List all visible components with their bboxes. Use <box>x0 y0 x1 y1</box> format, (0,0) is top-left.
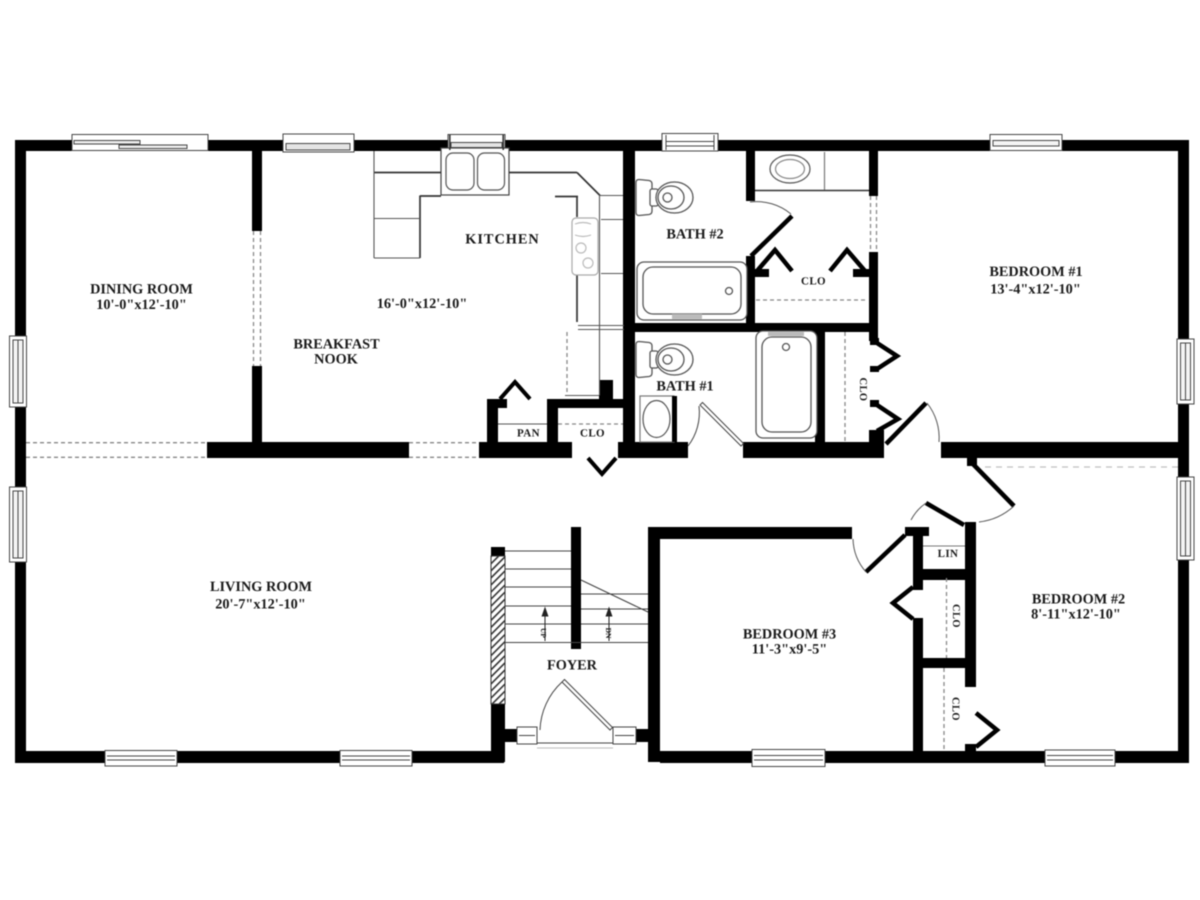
svg-text:13'-4"x12'-10": 13'-4"x12'-10" <box>990 282 1081 298</box>
svg-text:FOYER: FOYER <box>547 658 598 674</box>
svg-text:BEDROOM #3: BEDROOM #3 <box>743 627 836 643</box>
svg-text:11'-3"x9'-5": 11'-3"x9'-5" <box>752 642 827 658</box>
svg-text:CLO: CLO <box>950 697 961 721</box>
svg-text:CLO: CLO <box>857 378 868 402</box>
svg-text:CLO: CLO <box>580 428 605 440</box>
svg-text:NOOK: NOOK <box>314 352 359 368</box>
svg-text:DN: DN <box>604 628 613 639</box>
svg-text:DINING ROOM: DINING ROOM <box>90 282 193 298</box>
svg-text:CLO: CLO <box>801 276 826 288</box>
svg-text:CLO: CLO <box>950 604 961 628</box>
svg-text:LIVING ROOM: LIVING ROOM <box>210 579 313 595</box>
svg-text:10'-0"x12'-10": 10'-0"x12'-10" <box>96 297 187 313</box>
svg-text:BEDROOM #2: BEDROOM #2 <box>1032 592 1125 608</box>
svg-text:20'-7"x12'-10": 20'-7"x12'-10" <box>215 597 306 613</box>
svg-text:BATH #1: BATH #1 <box>656 379 713 395</box>
svg-text:PAN: PAN <box>517 428 540 440</box>
svg-text:BREAKFAST: BREAKFAST <box>293 337 380 353</box>
svg-text:16'-0"x12'-10": 16'-0"x12'-10" <box>377 296 468 312</box>
svg-text:LIN: LIN <box>938 548 959 560</box>
svg-text:UP: UP <box>539 628 548 638</box>
svg-text:BEDROOM #1: BEDROOM #1 <box>989 264 1082 280</box>
svg-text:8'-11"x12'-10": 8'-11"x12'-10" <box>1031 607 1121 623</box>
svg-text:BATH #2: BATH #2 <box>666 227 723 243</box>
svg-text:KITCHEN: KITCHEN <box>465 232 540 248</box>
